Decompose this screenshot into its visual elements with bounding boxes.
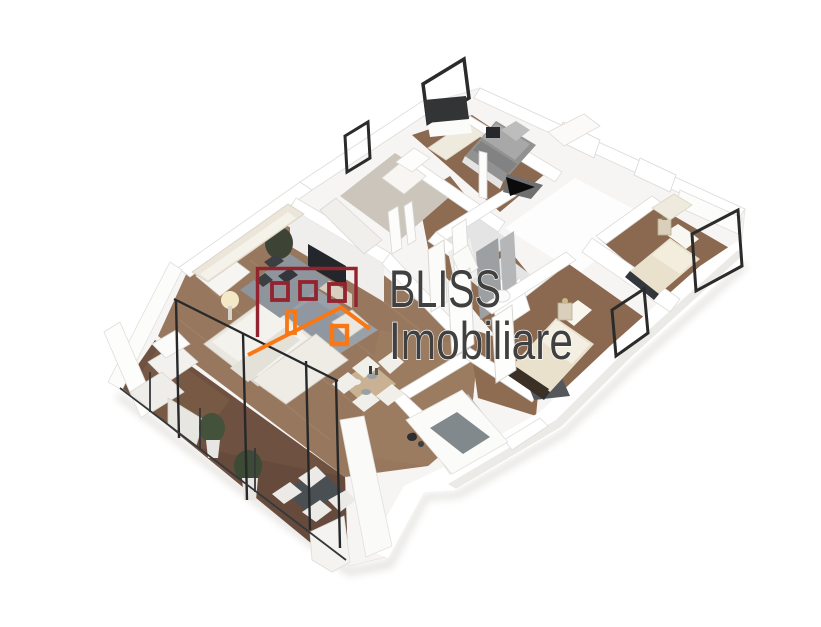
svg-text:BLISS: BLISS xyxy=(389,260,501,319)
svg-text:Imobiliare: Imobiliare xyxy=(389,312,573,371)
